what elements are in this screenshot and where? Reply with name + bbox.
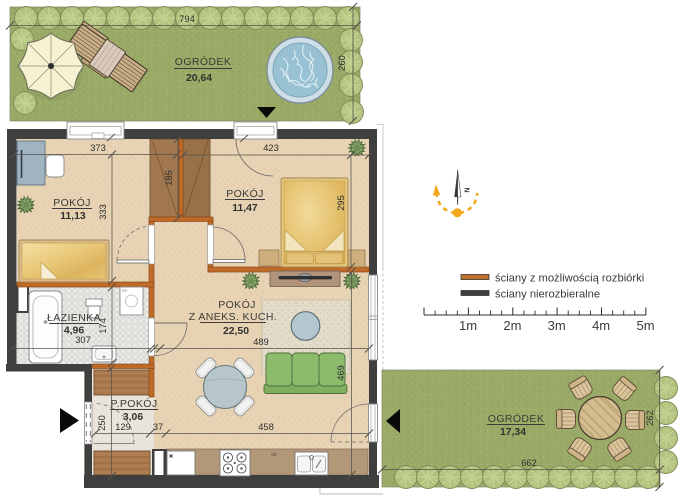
svg-text:333: 333 — [98, 204, 108, 220]
svg-text:794: 794 — [179, 14, 195, 24]
svg-text:458: 458 — [258, 422, 274, 432]
svg-text:20,64: 20,64 — [186, 73, 212, 84]
svg-text:P.POKÓJ: P.POKÓJ — [111, 397, 158, 410]
svg-text:11,47: 11,47 — [232, 203, 258, 214]
svg-text:ŁAZIENKA: ŁAZIENKA — [47, 312, 101, 324]
svg-text:11,13: 11,13 — [60, 211, 86, 222]
svg-text:489: 489 — [253, 337, 269, 347]
svg-text:129: 129 — [115, 422, 131, 432]
svg-text:SR: SR — [271, 452, 277, 457]
svg-text:307: 307 — [75, 335, 91, 345]
svg-text:POKÓJ: POKÓJ — [53, 196, 91, 209]
svg-text:OGRÓDEK: OGRÓDEK — [175, 55, 231, 68]
svg-text:250: 250 — [97, 415, 107, 431]
svg-text:185: 185 — [164, 170, 174, 186]
svg-text:22,50: 22,50 — [223, 326, 249, 337]
svg-text:3m: 3m — [548, 318, 566, 333]
svg-text:662: 662 — [521, 458, 537, 468]
svg-text:2m: 2m — [503, 318, 521, 333]
svg-text:1m: 1m — [459, 318, 477, 333]
svg-text:262: 262 — [645, 410, 655, 426]
svg-text:423: 423 — [263, 143, 279, 153]
svg-text:POKÓJ: POKÓJ — [218, 298, 256, 311]
svg-text:373: 373 — [90, 143, 106, 153]
svg-text:5m: 5m — [636, 318, 654, 333]
svg-text:ściany nierozbieralne: ściany nierozbieralne — [495, 289, 600, 301]
svg-text:N: N — [463, 187, 470, 192]
svg-text:295: 295 — [336, 195, 346, 211]
svg-text:260: 260 — [337, 55, 347, 71]
svg-text:4m: 4m — [592, 318, 610, 333]
svg-text:174: 174 — [98, 318, 108, 334]
svg-text:Z ANEKS. KUCH.: Z ANEKS. KUCH. — [189, 311, 277, 323]
svg-text:37: 37 — [153, 422, 163, 432]
svg-text:ściany z możliwością rozbiórki: ściany z możliwością rozbiórki — [495, 273, 644, 285]
svg-text:17,34: 17,34 — [500, 427, 526, 438]
svg-text:POKÓJ: POKÓJ — [226, 187, 264, 200]
svg-text:469: 469 — [336, 365, 346, 381]
svg-text:OGRÓDEK: OGRÓDEK — [488, 412, 544, 425]
